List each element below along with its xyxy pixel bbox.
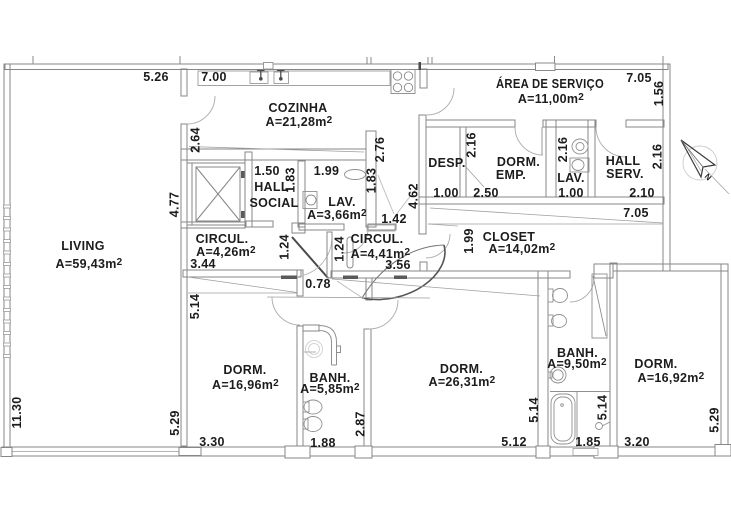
svg-text:A=21,28m2: A=21,28m2 [266,115,333,129]
svg-text:1.85: 1.85 [575,435,601,449]
svg-text:3.20: 3.20 [624,435,650,449]
svg-text:DORM.: DORM. [634,357,677,371]
svg-text:11.30: 11.30 [10,396,24,428]
svg-text:4.62: 4.62 [407,183,421,209]
svg-text:7.05: 7.05 [623,206,649,220]
svg-text:5.29: 5.29 [168,410,182,436]
svg-text:A=16,92m2: A=16,92m2 [638,371,705,385]
svg-text:1.99: 1.99 [462,228,476,254]
svg-text:A=26,31m2: A=26,31m2 [429,375,496,389]
svg-text:3.56: 3.56 [385,258,411,272]
svg-text:LAV.: LAV. [557,171,585,185]
svg-text:A=5,85m2: A=5,85m2 [300,382,360,396]
svg-text:1.00: 1.00 [433,186,459,200]
svg-text:LAV.: LAV. [328,195,356,209]
svg-text:1.56: 1.56 [652,81,666,107]
svg-text:5.26: 5.26 [143,70,169,84]
svg-text:HALL: HALL [254,180,289,194]
svg-text:7.05: 7.05 [626,71,652,85]
svg-text:A=14,02m2: A=14,02m2 [489,242,556,256]
svg-text:2.87: 2.87 [354,411,368,437]
svg-text:CIRCUL.: CIRCUL. [196,232,249,246]
svg-text:SOCIAL: SOCIAL [249,196,298,210]
svg-text:5.29: 5.29 [708,407,722,433]
svg-text:1.42: 1.42 [381,212,407,226]
svg-text:A=16,96m2: A=16,96m2 [212,378,279,392]
svg-text:LIVING: LIVING [61,239,104,253]
svg-text:ÁREA DE SERVIÇO: ÁREA DE SERVIÇO [496,76,604,91]
svg-text:2.10: 2.10 [629,186,655,200]
svg-text:DORM.: DORM. [440,362,483,376]
svg-text:4.77: 4.77 [168,192,182,218]
svg-text:A=9,50m2: A=9,50m2 [547,357,607,371]
svg-text:5.14: 5.14 [596,395,610,421]
svg-text:EMP.: EMP. [496,168,526,182]
svg-text:CIRCUL.: CIRCUL. [351,232,404,246]
svg-text:7.00: 7.00 [201,70,227,84]
svg-text:2.16: 2.16 [651,144,665,170]
svg-text:3.30: 3.30 [199,435,225,449]
svg-text:2.76: 2.76 [373,137,387,163]
svg-text:2.50: 2.50 [473,186,499,200]
svg-text:2.16: 2.16 [465,132,479,158]
svg-text:1.00: 1.00 [558,186,584,200]
svg-text:2.64: 2.64 [189,127,203,153]
svg-text:1.88: 1.88 [310,436,336,450]
svg-text:A=3,66m2: A=3,66m2 [307,208,367,222]
svg-text:1.50: 1.50 [254,164,280,178]
svg-text:1.24: 1.24 [278,234,292,260]
svg-text:0.78: 0.78 [305,277,331,291]
svg-text:DORM.: DORM. [497,155,540,169]
svg-text:1.99: 1.99 [314,164,340,178]
svg-text:DESP.: DESP. [428,156,465,170]
svg-text:COZINHA: COZINHA [268,101,327,115]
svg-text:5.12: 5.12 [501,435,527,449]
svg-text:5.14: 5.14 [188,294,202,320]
svg-text:SERV.: SERV. [606,167,644,181]
svg-text:DORM.: DORM. [223,363,266,377]
svg-text:1.83: 1.83 [365,168,379,194]
svg-text:HALL: HALL [606,154,641,168]
svg-text:A=59,43m2: A=59,43m2 [56,257,123,271]
svg-text:2.16: 2.16 [556,137,570,163]
svg-text:5.14: 5.14 [527,397,541,423]
svg-text:1.24: 1.24 [333,236,347,262]
svg-text:A=11,00m2: A=11,00m2 [518,92,584,106]
svg-text:3.44: 3.44 [190,257,216,271]
